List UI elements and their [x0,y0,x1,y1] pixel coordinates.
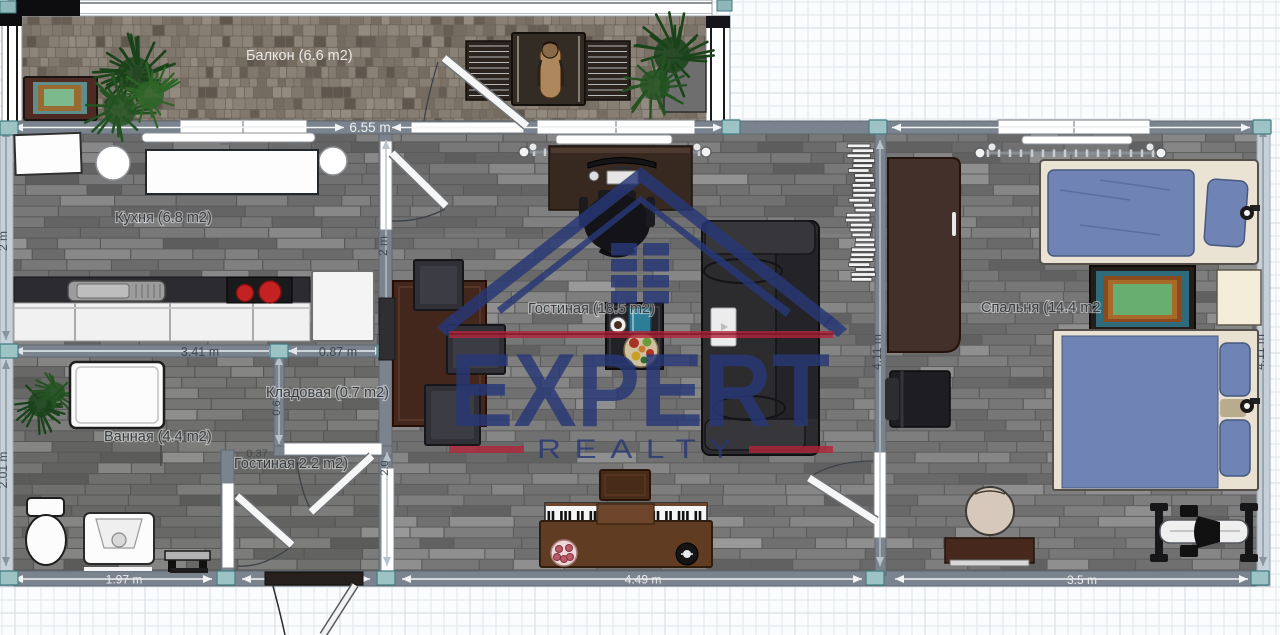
svg-text:4.49 m: 4.49 m [625,573,662,587]
svg-text:REALTY: REALTY [537,434,745,464]
svg-text:2 m: 2 m [0,231,10,251]
svg-text:2 m: 2 m [376,236,390,256]
svg-text:Спальня (14.4 m2: Спальня (14.4 m2 [981,300,1101,316]
svg-text:Балкон (6.6 m2): Балкон (6.6 m2) [246,48,353,64]
svg-text:Ванная (4.4 m2): Ванная (4.4 m2) [104,429,212,445]
svg-text:0.6: 0.6 [271,400,283,415]
svg-text:3.41 m: 3.41 m [181,345,219,359]
svg-text:6.55 m: 6.55 m [349,120,390,135]
svg-text:3.5 m: 3.5 m [1067,573,1097,587]
svg-text:0.87 m: 0.87 m [319,345,357,359]
svg-text:2.01 m: 2.01 m [0,452,10,489]
svg-text:EXPERT: EXPERT [450,333,830,449]
svg-text:Кухня (6.8 m2): Кухня (6.8 m2) [115,210,212,226]
svg-text:4.11 m: 4.11 m [870,334,884,370]
svg-text:2.0: 2.0 [379,460,391,475]
svg-text:Гостиная 2.2 m2): Гостиная 2.2 m2) [234,456,348,472]
svg-text:1.97 m: 1.97 m [106,573,143,587]
svg-text:Кладовая (0.7 m2): Кладовая (0.7 m2) [266,385,389,401]
